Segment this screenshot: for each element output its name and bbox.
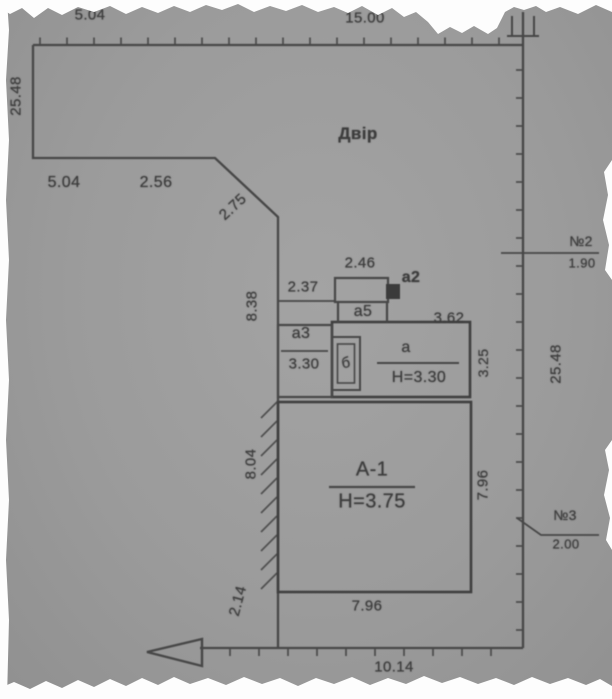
neighbor-3-marker: №3	[553, 507, 577, 523]
dim-a-right-3-25: 3.25	[475, 349, 491, 378]
neighbor-2-dim-1-90: 1.90	[569, 256, 596, 271]
plan-drawing: 5.0415.0025.48Двір5.042.562.758.382.46а2…	[0, 0, 612, 699]
dim-bottom-10-14: 10.14	[374, 659, 414, 676]
scanned-bti-plan: 5.0415.0025.48Двір5.042.562.758.382.46а2…	[0, 0, 612, 699]
dim-notch-5-04: 5.04	[48, 174, 81, 192]
building-label-a5: а5	[354, 303, 373, 321]
dim-a3-3-30: 3.30	[289, 356, 320, 373]
labels-layer: 5.0415.0025.48Двір5.042.562.758.382.46а2…	[0, 0, 612, 699]
height-A-1: H=3.75	[338, 491, 405, 514]
dim-a-top-3-62: 3.62	[434, 310, 465, 327]
building-label-a2: а2	[402, 269, 421, 287]
dim-A1-bottom-7-96: 7.96	[352, 598, 383, 615]
dim-left-8-38: 8.38	[244, 291, 261, 322]
dim-notch-2-56: 2.56	[140, 174, 173, 192]
neighbor-3-dim-2-00: 2.00	[553, 537, 580, 552]
building-label-b: б	[340, 354, 352, 372]
dim-A1-right-7-96: 7.96	[475, 470, 492, 501]
dim-diagonal-2-75: 2.75	[216, 190, 250, 223]
dim-2-37: 2.37	[288, 279, 319, 296]
dim-right-25-48: 25.48	[548, 344, 565, 384]
neighbor-2-marker: №2	[569, 233, 593, 249]
dim-a5-width-2-46: 2.46	[345, 255, 376, 272]
height-a: H=3.30	[392, 369, 446, 387]
dim-2-14: 2.14	[226, 584, 250, 618]
building-label-A-1: А-1	[356, 459, 388, 482]
building-label-a: а	[401, 339, 410, 357]
yard-label: Двір	[338, 124, 377, 144]
dim-A1-left-8-04: 8.04	[243, 449, 260, 480]
building-label-a3: а3	[292, 325, 311, 343]
dim-left-25-48: 25.48	[8, 76, 25, 116]
